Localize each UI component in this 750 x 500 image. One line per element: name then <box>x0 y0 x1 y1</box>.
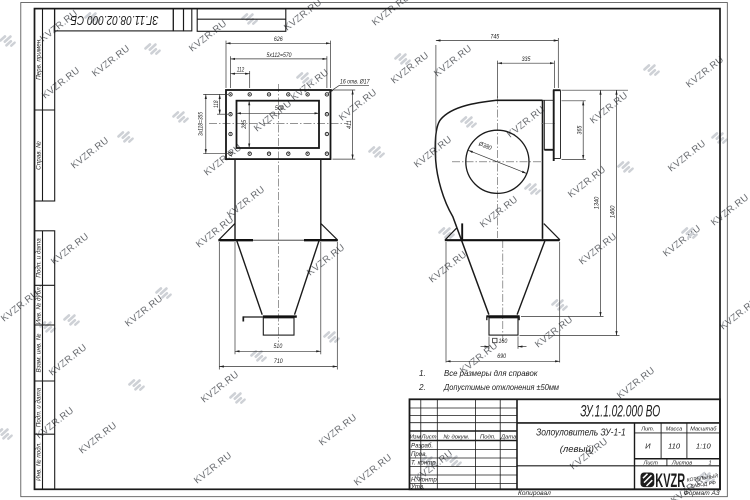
svg-text:Т. контр: Т. контр <box>411 460 436 467</box>
svg-text:Изм: Изм <box>410 434 421 440</box>
svg-text:Пров.: Пров. <box>411 451 427 458</box>
svg-text:Разраб.: Разраб. <box>411 443 433 450</box>
svg-text:Подп. и дата: Подп. и дата <box>35 238 43 278</box>
svg-text:1: 1 <box>708 460 711 466</box>
svg-text:ЗГ.11.08.02.000 СБ: ЗГ.11.08.02.000 СБ <box>70 13 158 28</box>
svg-text:Лист: Лист <box>420 434 436 440</box>
svg-text:1460: 1460 <box>610 205 617 218</box>
svg-text:118: 118 <box>213 100 220 108</box>
svg-text:Подп. и дата: Подп. и дата <box>35 387 43 427</box>
svg-text:335: 335 <box>522 56 531 63</box>
svg-text:110: 110 <box>668 442 681 451</box>
svg-text:285: 285 <box>241 120 248 130</box>
svg-text:5х112=570: 5х112=570 <box>267 52 292 59</box>
svg-text:Допустимые отклонения ±50мм: Допустимые отклонения ±50мм <box>443 383 559 392</box>
svg-text:1.: 1. <box>419 369 426 378</box>
svg-text:Копировал: Копировал <box>518 490 551 497</box>
svg-text:1340: 1340 <box>594 196 601 209</box>
svg-text:Утв.: Утв. <box>410 483 425 490</box>
svg-text:Взам. инв. №: Взам. инв. № <box>36 333 43 372</box>
svg-text:Золоуловитель ЗУ-1-1: Золоуловитель ЗУ-1-1 <box>536 428 626 439</box>
svg-text:365: 365 <box>576 125 583 134</box>
svg-text:Инв. № подл.: Инв. № подл. <box>35 442 43 481</box>
svg-text:Справ. №: Справ. № <box>36 141 43 170</box>
svg-text:№ докум.: № докум. <box>443 433 469 440</box>
svg-text:(левый): (левый) <box>560 444 594 455</box>
svg-text:411: 411 <box>346 120 353 129</box>
svg-text:2.: 2. <box>418 383 426 392</box>
svg-text:Инв. № дубл.: Инв. № дубл. <box>35 286 43 325</box>
svg-text:1:10: 1:10 <box>696 442 712 451</box>
svg-text:Лит.: Лит. <box>640 426 654 432</box>
svg-text:Лист: Лист <box>642 460 658 466</box>
svg-text:626: 626 <box>274 36 283 43</box>
svg-text:710: 710 <box>274 358 283 365</box>
svg-text:16 отв. Ø17: 16 отв. Ø17 <box>340 79 370 86</box>
svg-text:500: 500 <box>275 105 284 112</box>
svg-text:690: 690 <box>497 353 506 360</box>
svg-text:Все размеры для справок: Все размеры для справок <box>444 369 539 378</box>
svg-text:Формат А3: Формат А3 <box>684 490 720 497</box>
svg-text:KVZR: KVZR <box>655 470 685 492</box>
svg-text:Масса: Масса <box>666 426 683 432</box>
svg-text:Дата: Дата <box>500 434 517 440</box>
svg-text:Перв. примен.: Перв. примен. <box>36 38 43 80</box>
svg-text:Подп.: Подп. <box>480 434 496 440</box>
svg-text:3х118=355: 3х118=355 <box>198 112 205 136</box>
svg-text:160: 160 <box>499 338 508 345</box>
svg-text:И: И <box>645 442 651 451</box>
svg-text:112: 112 <box>237 67 245 74</box>
svg-text:510: 510 <box>274 343 283 350</box>
svg-text:745: 745 <box>490 33 499 40</box>
svg-text:Масштаб: Масштаб <box>690 426 717 432</box>
svg-text:ЗУ.1.1.02.000 ВО: ЗУ.1.1.02.000 ВО <box>580 403 660 421</box>
svg-text:Листов: Листов <box>671 460 692 466</box>
